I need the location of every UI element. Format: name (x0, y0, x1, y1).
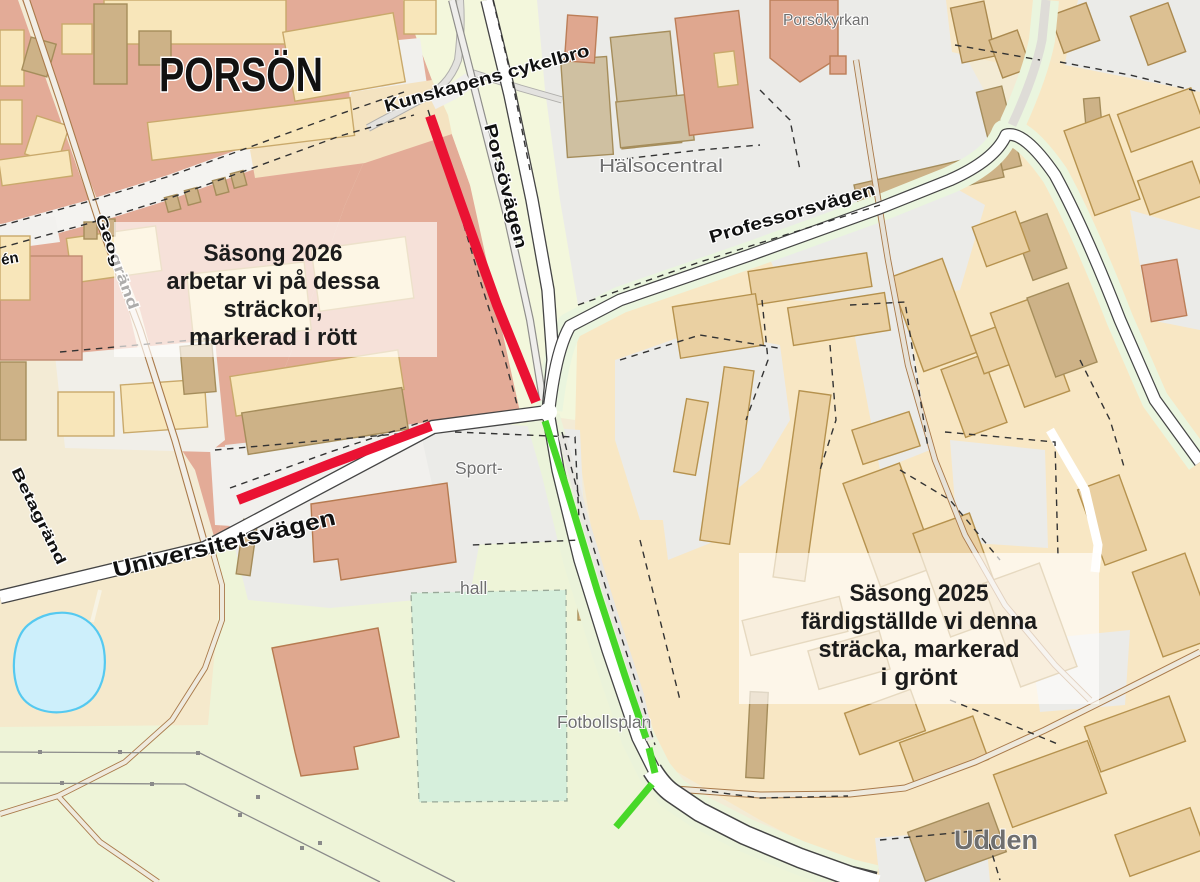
svg-text:Säsong 2026: Säsong 2026 (204, 240, 343, 267)
svg-text:sträckor,: sträckor, (224, 296, 323, 323)
svg-text:sträcka, markerad: sträcka, markerad (819, 636, 1020, 663)
svg-text:färdigställde vi denna: färdigställde vi denna (801, 608, 1037, 635)
svg-text:Säsong 2025: Säsong 2025 (850, 580, 989, 607)
svg-text:Fotbollsplan: Fotbollsplan (557, 712, 651, 732)
svg-text:Udden: Udden (954, 825, 1038, 855)
svg-text:én: én (0, 249, 20, 269)
svg-text:Porsökyrkan: Porsökyrkan (783, 12, 869, 29)
svg-text:Sport-: Sport- (455, 458, 503, 478)
svg-text:markerad i rött: markerad i rött (189, 324, 357, 351)
svg-text:hall: hall (460, 578, 487, 598)
svg-text:PORSÖN: PORSÖN (159, 49, 323, 102)
svg-text:Hälsocentral: Hälsocentral (599, 155, 723, 176)
svg-text:i grönt: i grönt (881, 664, 958, 691)
svg-text:arbetar vi på dessa: arbetar vi på dessa (167, 268, 380, 295)
